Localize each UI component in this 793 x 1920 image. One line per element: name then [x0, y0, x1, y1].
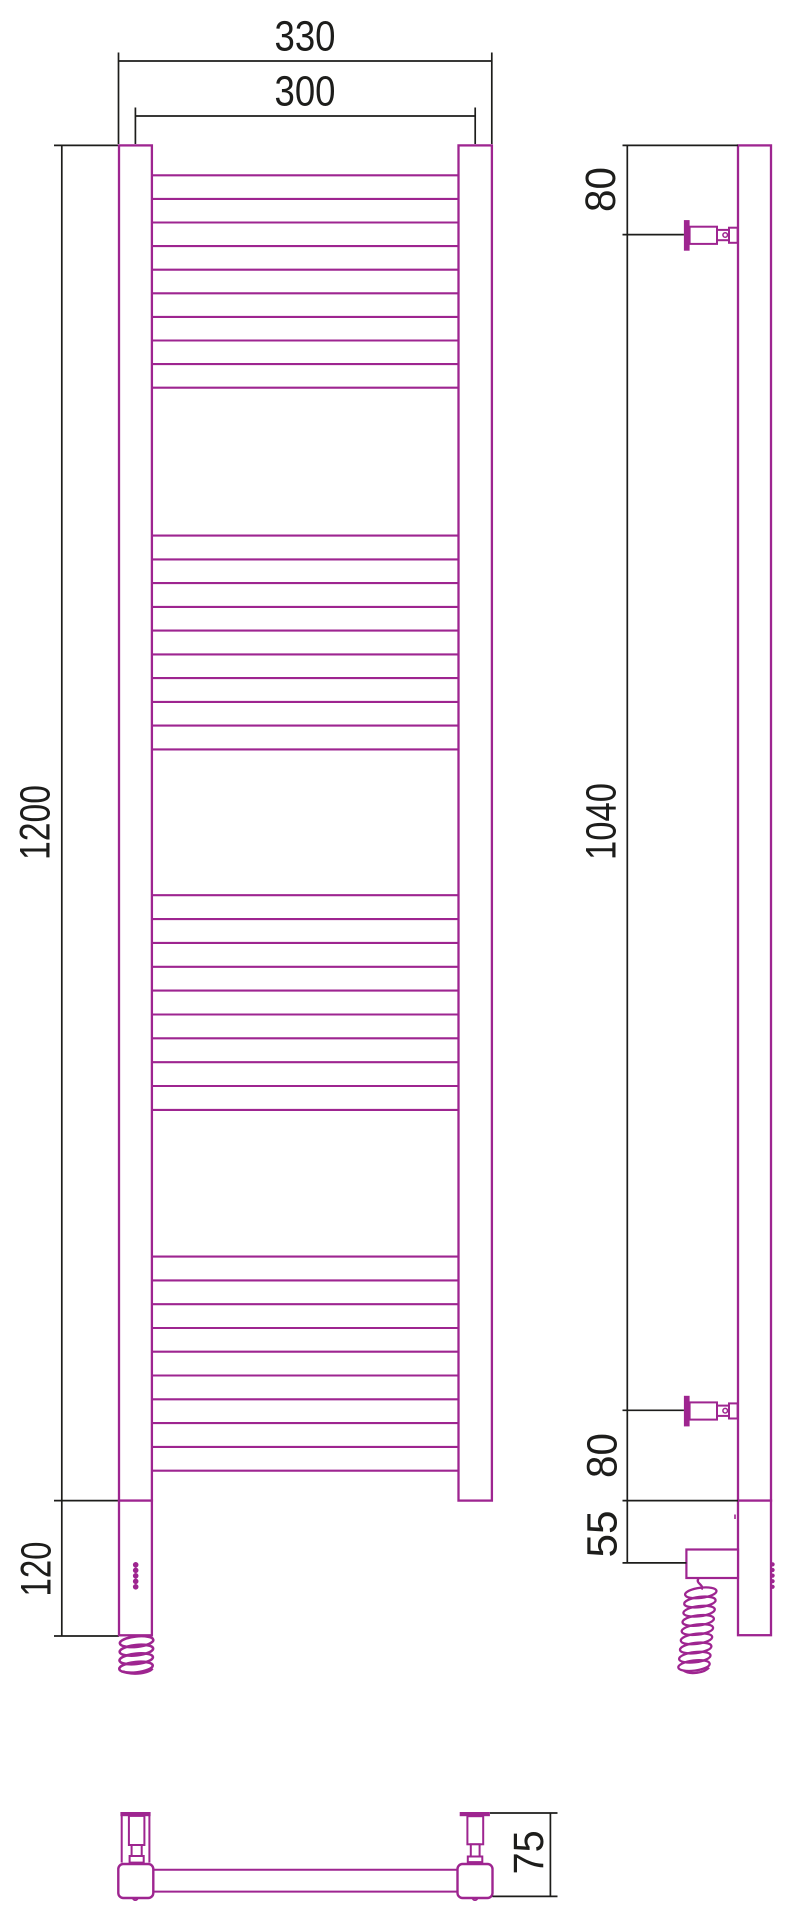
svg-text:1040: 1040	[579, 783, 626, 860]
svg-text:330: 330	[275, 14, 336, 61]
svg-text:80: 80	[580, 1433, 627, 1478]
svg-text:300: 300	[275, 69, 336, 116]
svg-text:120: 120	[14, 1542, 61, 1597]
svg-text:1200: 1200	[12, 785, 59, 860]
svg-text:55: 55	[580, 1511, 627, 1558]
svg-text:80: 80	[578, 167, 625, 212]
svg-text:75: 75	[506, 1830, 553, 1874]
